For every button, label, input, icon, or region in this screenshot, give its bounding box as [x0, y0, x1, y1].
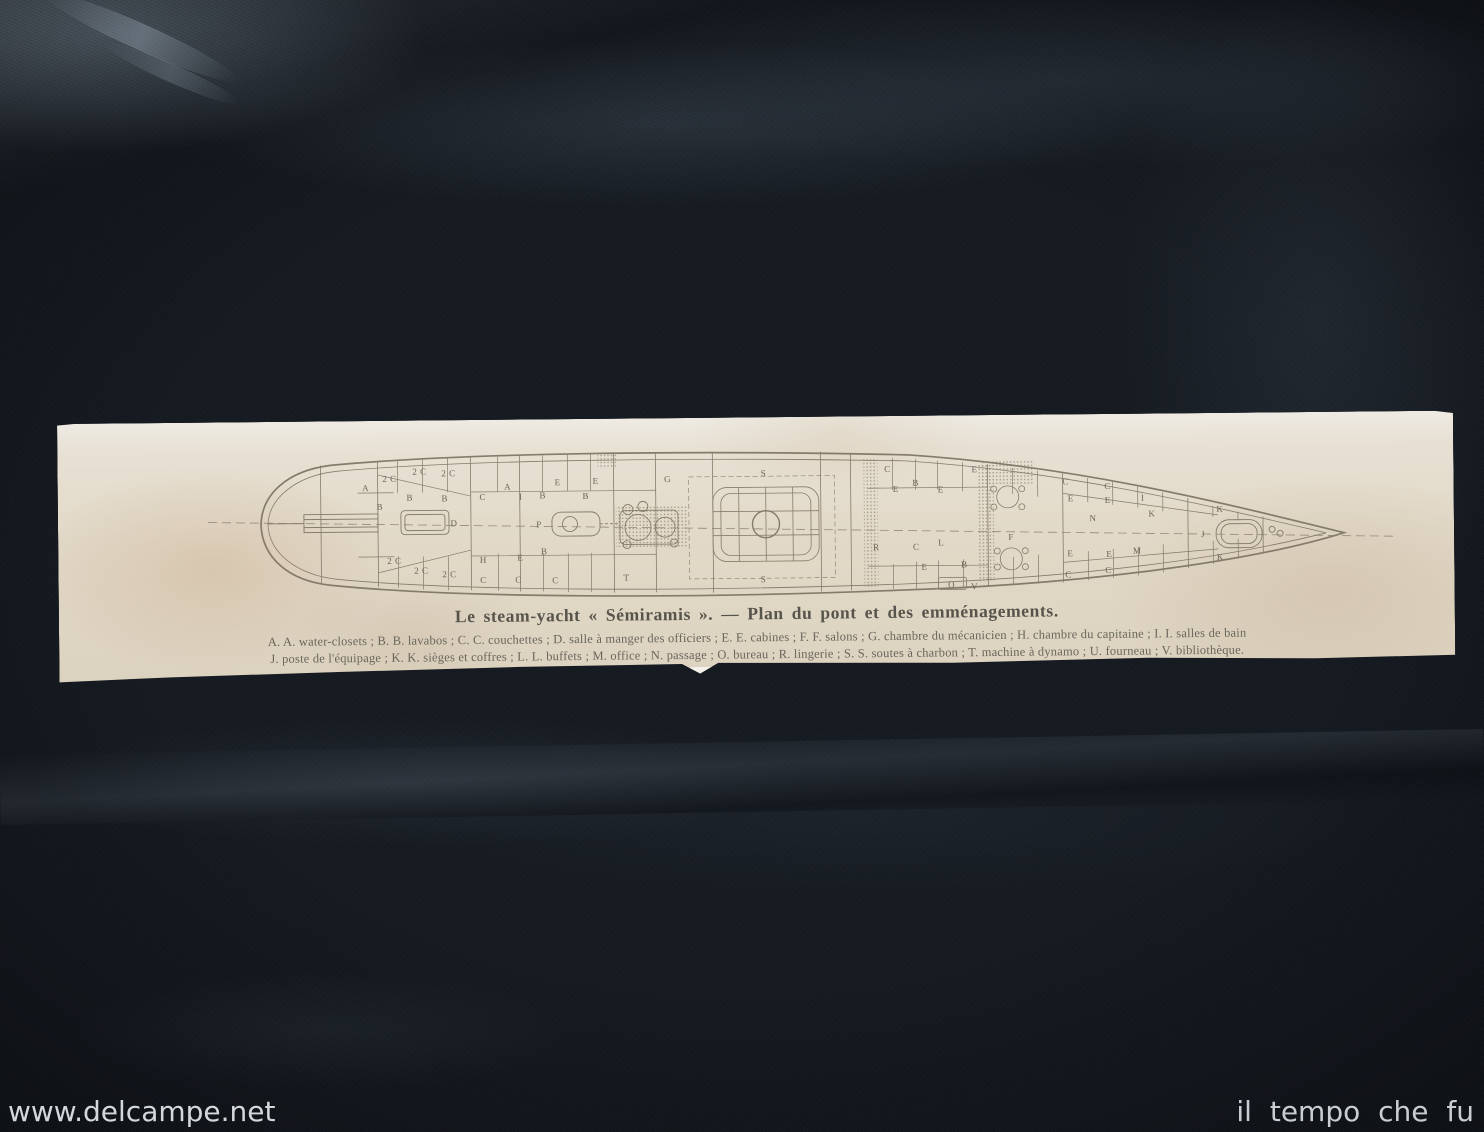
plan-label-2C: 2 C	[414, 565, 428, 575]
plan-label-C: C	[1065, 569, 1072, 579]
centerline	[208, 511, 1393, 547]
plan-label-K: K	[1217, 552, 1224, 562]
plan-label-2C: 2 C	[382, 474, 396, 484]
plan-label-E: E	[555, 477, 561, 487]
plan-label-B: B	[441, 493, 448, 503]
mess-table	[401, 510, 449, 534]
bow-boat	[1216, 519, 1283, 548]
plan-label-B: B	[541, 546, 548, 556]
plan-label-E: E	[971, 464, 977, 474]
plan-label-N: N	[1089, 513, 1096, 523]
plan-label-S: S	[761, 574, 767, 584]
plan-label-K: K	[1216, 504, 1223, 514]
photo-of-print: A2 C2 C2 CBBBDCAIBEBEPGHEB2 C2 C2 CCCCTS…	[0, 0, 1484, 1132]
plan-label-C: C	[913, 542, 920, 552]
plan-label-J: J	[1201, 529, 1205, 539]
plan-label-P: P	[536, 519, 542, 529]
plan-label-L: L	[938, 537, 944, 547]
deck-plan-svg: A2 C2 C2 CBBBDCAIBEBEPGHEB2 C2 C2 CCCCTS…	[57, 415, 1455, 610]
plan-label-B: B	[582, 491, 589, 501]
plan-label-C: C	[515, 575, 522, 585]
plan-label-I: I	[519, 492, 523, 502]
plan-label-T: T	[623, 573, 629, 583]
plan-label-F: F	[1008, 532, 1014, 542]
plan-label-H: H	[480, 555, 487, 565]
plan-label-S: S	[761, 468, 767, 478]
plan-label-B: B	[912, 478, 919, 488]
plan-label-K: K	[1148, 508, 1155, 518]
deck-plan: A2 C2 C2 CBBBDCAIBEBEPGHEB2 C2 C2 CCCCTS…	[207, 445, 1393, 600]
plan-label-E: E	[1105, 495, 1111, 505]
plan-label-G: G	[664, 474, 671, 484]
plan-label-E: E	[593, 476, 599, 486]
plan-label-C: C	[480, 575, 487, 585]
plan-label-2C: 2 C	[442, 569, 456, 579]
plan-label-B: B	[377, 502, 384, 512]
plan-label-E: E	[938, 484, 944, 494]
stern-shaft	[268, 514, 378, 533]
capstan	[552, 512, 618, 537]
plan-label-D: D	[450, 518, 457, 528]
plan-label-E: E	[517, 553, 523, 563]
plan-label-E: E	[1068, 493, 1074, 503]
plan-label-V: V	[971, 581, 978, 591]
plan-label-E: E	[893, 484, 899, 494]
plan-label-R: R	[873, 542, 880, 552]
plan-label-C: C	[1062, 476, 1069, 486]
plan-label-B: B	[539, 490, 546, 500]
paper-clipping: A2 C2 C2 CBBBDCAIBEBEPGHEB2 C2 C2 CCCCTS…	[57, 411, 1455, 686]
watermark-delcampe: www.delcampe.net	[8, 1095, 276, 1128]
plan-label-A: A	[362, 483, 369, 493]
watermark-il-tempo-che-fu: il tempo che fu	[1236, 1095, 1474, 1128]
plan-label-E: E	[1067, 548, 1073, 558]
plan-label-2C: 2 C	[412, 466, 426, 476]
plan-label-I: I	[1141, 493, 1145, 503]
plan-label-C: C	[552, 575, 559, 585]
plan-label-2C: 2 C	[441, 468, 455, 478]
bulkheads-lower	[398, 539, 1238, 594]
plan-label-C: C	[1105, 565, 1112, 575]
hatched-walls	[597, 449, 1034, 591]
plan-label-A: A	[504, 482, 511, 492]
plan-label-C: C	[1104, 481, 1111, 491]
plan-label-O: O	[948, 579, 955, 589]
plan-label-B: B	[406, 493, 413, 503]
plan-label-E: E	[921, 562, 927, 572]
skylight-and-funnel	[689, 476, 836, 579]
plan-label-2C: 2 C	[387, 556, 401, 566]
plan-label-B: B	[961, 559, 968, 569]
plan-label-M: M	[1133, 546, 1142, 556]
plan-label-C: C	[479, 492, 486, 502]
plan-label-E: E	[1106, 549, 1112, 559]
plan-label-C: C	[884, 464, 891, 474]
